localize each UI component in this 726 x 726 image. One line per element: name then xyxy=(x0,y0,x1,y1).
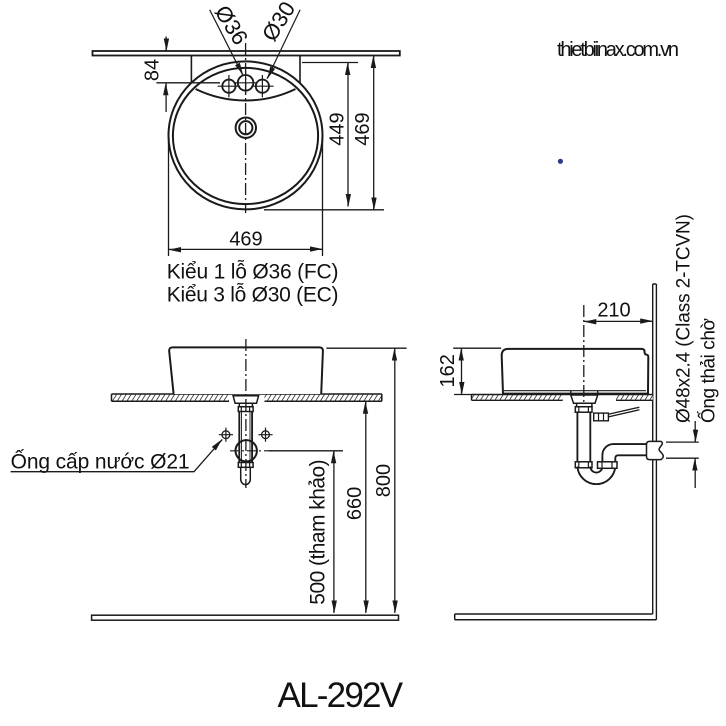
svg-text:Kiểu 3 lỗ Ø30 (EC): Kiểu 3 lỗ Ø30 (EC) xyxy=(167,283,339,306)
svg-text:449: 449 xyxy=(326,112,348,145)
svg-text:Ống cấp nước Ø21: Ống cấp nước Ø21 xyxy=(11,450,190,474)
svg-text:Ống thải chờ: Ống thải chờ xyxy=(698,318,720,423)
svg-text:84: 84 xyxy=(142,59,164,81)
svg-text:Ø36: Ø36 xyxy=(210,1,253,50)
svg-text:AL-292V: AL-292V xyxy=(278,676,404,715)
svg-text:500 (tham khảo): 500 (tham khảo) xyxy=(307,459,330,604)
svg-text:Ø48x2.4 (Class 2-TCVN): Ø48x2.4 (Class 2-TCVN) xyxy=(673,214,694,423)
svg-text:469: 469 xyxy=(352,112,374,145)
svg-text:800: 800 xyxy=(373,464,395,497)
svg-text:469: 469 xyxy=(229,229,262,251)
svg-text:660: 660 xyxy=(344,487,366,520)
svg-text:162: 162 xyxy=(437,354,459,387)
svg-text:thietbiinax.com.vn: thietbiinax.com.vn xyxy=(557,39,679,61)
svg-text:210: 210 xyxy=(597,300,630,322)
svg-text:Kiểu 1 lỗ Ø36 (FC): Kiểu 1 lỗ Ø36 (FC) xyxy=(167,260,339,283)
